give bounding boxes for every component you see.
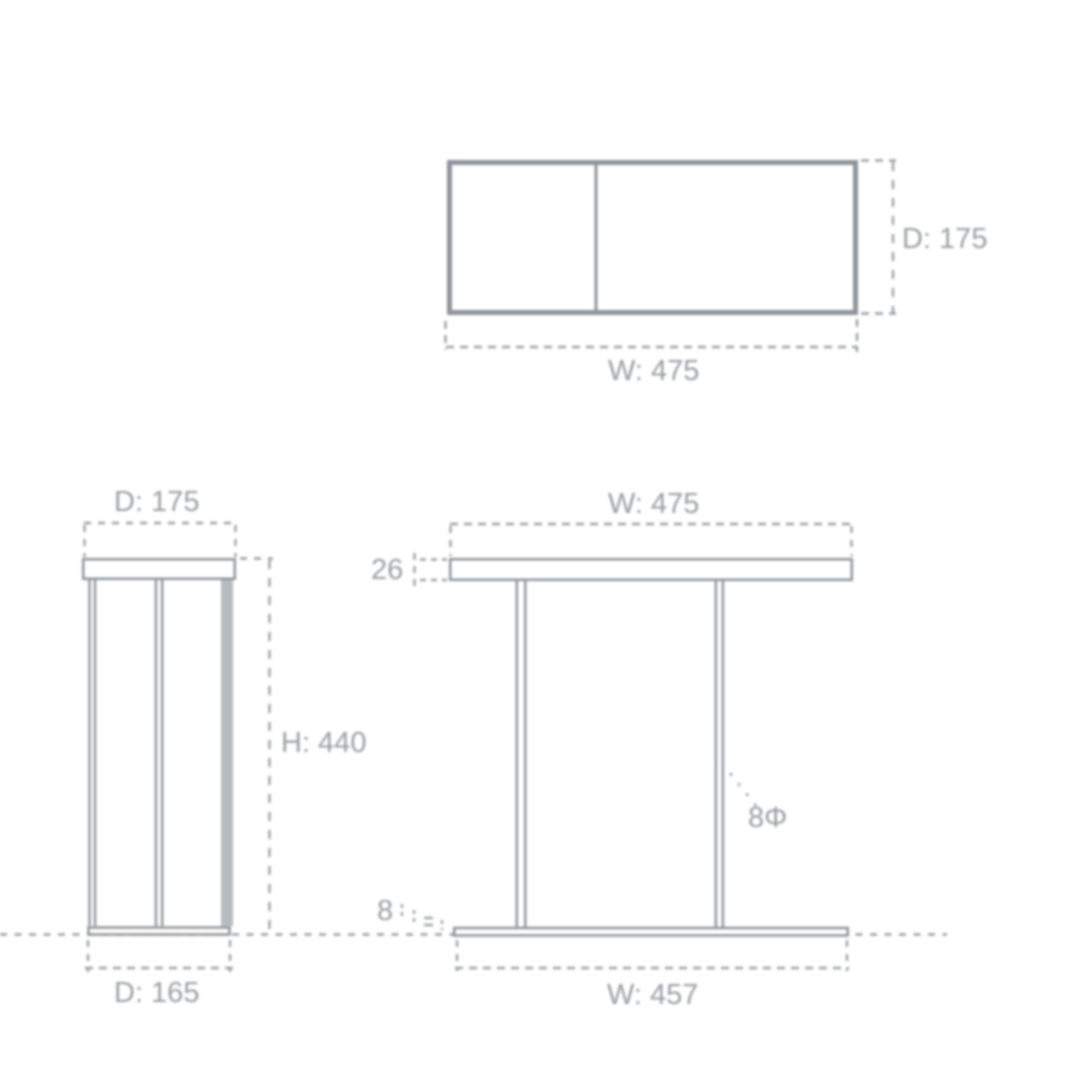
svg-text:D: 165: D: 165 [114,977,199,1009]
svg-text:W: 475: W: 475 [608,355,699,387]
svg-text:D: 175: D: 175 [902,223,987,255]
svg-text:8: 8 [377,895,393,927]
svg-text:8Φ: 8Φ [748,802,787,834]
svg-text:26: 26 [371,554,403,586]
svg-text:W: 475: W: 475 [608,488,699,520]
svg-text:H: 440: H: 440 [281,727,366,759]
svg-text:W: 457: W: 457 [607,979,698,1011]
svg-text:D: 175: D: 175 [114,486,199,518]
